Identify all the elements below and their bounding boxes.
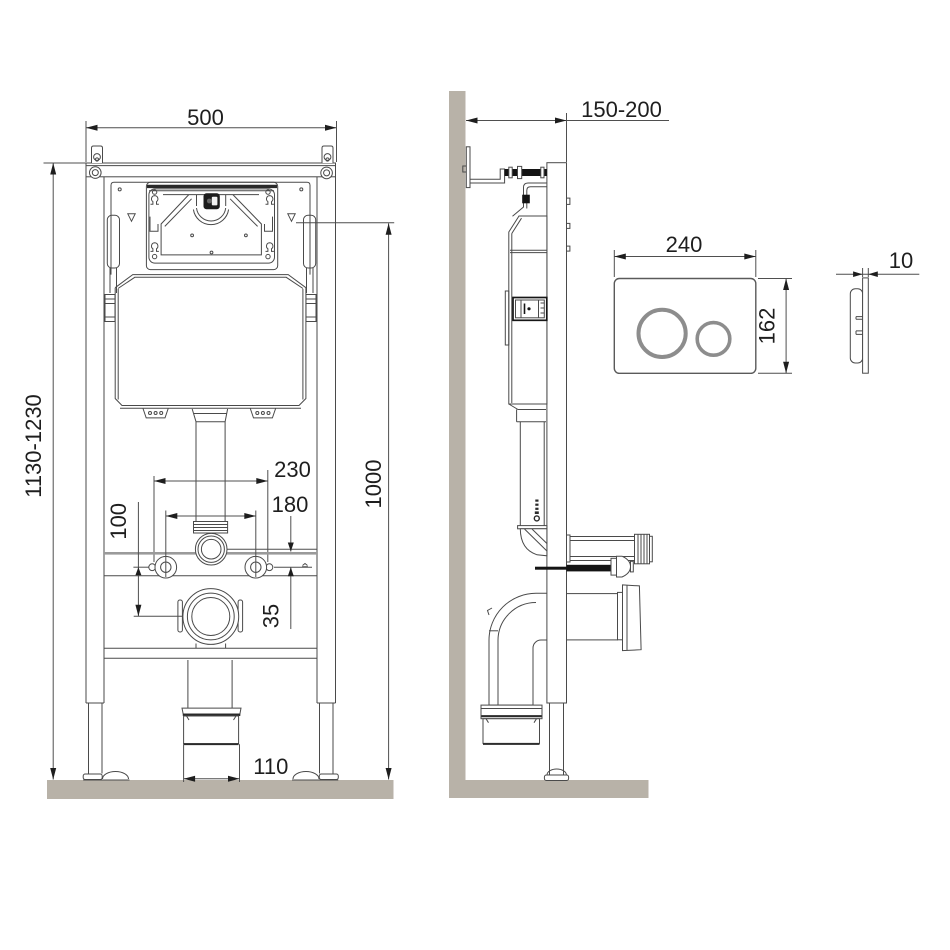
- svg-text:500: 500: [187, 105, 224, 130]
- svg-text:162: 162: [755, 308, 780, 345]
- svg-text:10: 10: [889, 248, 913, 273]
- svg-text:230: 230: [274, 457, 311, 482]
- svg-text:1000: 1000: [361, 460, 386, 509]
- svg-text:100: 100: [106, 503, 131, 540]
- svg-text:35: 35: [259, 604, 284, 628]
- svg-text:1130-1230: 1130-1230: [21, 394, 46, 498]
- svg-text:180: 180: [272, 492, 309, 517]
- svg-text:110: 110: [253, 754, 288, 779]
- svg-text:150-200: 150-200: [581, 97, 662, 122]
- svg-text:240: 240: [666, 232, 703, 257]
